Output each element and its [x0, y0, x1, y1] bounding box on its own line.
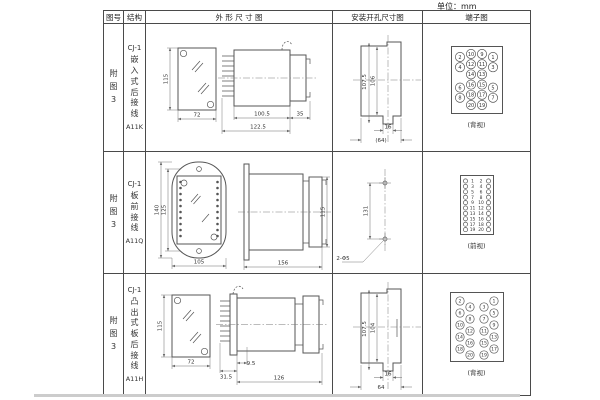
- dim-inner-height: 125: [161, 204, 167, 215]
- dim-overall-height: 107.5: [362, 73, 368, 89]
- terminal-number: 13: [478, 72, 484, 78]
- terminal-circle: [463, 222, 467, 226]
- terminal-circle: [463, 184, 467, 188]
- terminal-circle: [486, 190, 490, 194]
- terminal-number: 5: [471, 189, 474, 195]
- terminal-number: 11: [478, 62, 484, 68]
- terminal-number: 14: [478, 211, 484, 217]
- terminal-number: 6: [458, 85, 461, 91]
- terminal-number: 20: [467, 353, 473, 359]
- cell-terminal-row1: 2109141211314136161558181772019 (背视): [423, 24, 531, 152]
- terminal-number: 20: [478, 227, 484, 233]
- terminal-number: 17: [469, 222, 475, 228]
- terminal-number: 6: [479, 189, 482, 195]
- dim-outer-height: 140: [154, 204, 160, 215]
- dim-front-width: 105: [193, 259, 204, 265]
- model-name: CJ-1: [128, 286, 142, 294]
- mounting-holes: [379, 169, 391, 253]
- terminal-number: 4: [479, 184, 482, 190]
- install-drawing-a11q: 131 2-Φ5: [333, 157, 423, 269]
- side-view: [238, 164, 331, 260]
- install-drawing-a11h: 107.5 104 16 64: [333, 277, 423, 393]
- terminal-circle: [463, 228, 467, 232]
- terminal-circle: [486, 184, 490, 188]
- dim-front-height: 115: [157, 320, 163, 331]
- header-install: 安装开孔尺寸图: [333, 11, 423, 24]
- dim-overall-height: 107.5: [362, 320, 368, 336]
- terminal-circle: [463, 217, 467, 221]
- dim-slot-width: 16: [384, 124, 391, 130]
- terminal-circle: [486, 206, 490, 210]
- dim-body-length: 126: [273, 375, 284, 381]
- mounting-type: 凸出式板后接线: [129, 297, 141, 373]
- terminal-number: 5: [491, 85, 494, 91]
- side-dimensions: 9.5 31.5 126: [219, 343, 321, 385]
- terminal-number: 19: [481, 353, 487, 359]
- terminal-number: 17: [491, 347, 497, 353]
- terminal-number: 7: [471, 195, 474, 201]
- dim-side-length: 156: [277, 260, 288, 266]
- terminal-number: 12: [467, 329, 473, 335]
- terminal-number: 16: [478, 216, 484, 222]
- dim-hole-distance: 131: [363, 205, 369, 216]
- terminal-number: 15: [481, 341, 487, 347]
- terminal-number: 18: [467, 93, 473, 99]
- terminal-number: 11: [469, 206, 475, 212]
- terminal-number: 18: [457, 347, 463, 353]
- cell-terminal-row3: 2610141848121620371115191591317 (背视): [423, 274, 531, 396]
- terminal-number: 8: [479, 195, 482, 201]
- front-view: [172, 295, 210, 357]
- install-drawing-a11k: 107.5 106 16 (64): [333, 30, 423, 146]
- terminal-block: 2610141848121620371115191591317: [450, 292, 504, 362]
- outline-drawing-a11h: 115 72 9.5 31: [146, 281, 333, 389]
- terminal-diagram: 2610141848121620371115191591317: [450, 292, 504, 362]
- hole-spec-label: 2-Φ5: [336, 256, 350, 262]
- terminal-number: 14: [467, 72, 473, 78]
- model-name: CJ-1: [128, 44, 142, 52]
- header-terminal: 端子图: [423, 11, 531, 24]
- terminal-number: 9: [492, 323, 495, 329]
- header-struct: 结构: [124, 11, 146, 24]
- terminal-number: 17: [478, 93, 484, 99]
- terminal-circle: [463, 195, 467, 199]
- dim-total-length: 122.5: [250, 124, 266, 130]
- terminal-number: 11: [481, 329, 487, 335]
- terminal-number: 10: [457, 323, 463, 329]
- terminal-number: 13: [491, 335, 497, 341]
- dim-plug-length: 35: [296, 111, 303, 117]
- front-view: [178, 48, 216, 110]
- terminal-number: 9: [471, 200, 474, 206]
- terminal-number: 8: [458, 96, 461, 102]
- terminal-number: 1: [491, 55, 494, 61]
- side-view: [218, 41, 316, 105]
- terminal-number: 4: [468, 305, 471, 311]
- header-fig: 图号: [104, 11, 124, 24]
- dim-side-height: 115: [320, 206, 326, 217]
- cell-install-row3: 107.5 104 16 64: [333, 274, 423, 396]
- cell-struct-row3: CJ-1 凸出式板后接线 A11H: [124, 274, 146, 396]
- terminal-circle: [486, 211, 490, 215]
- terminal-circle: [463, 211, 467, 215]
- cell-terminal-row2: 1234567891011121314151617181920 (前视): [423, 152, 531, 274]
- terminal-number: 1: [471, 179, 474, 185]
- terminal-number: 13: [469, 211, 475, 217]
- cell-fig-row2: 附图3: [104, 152, 124, 274]
- cell-outline-row1: 115 72 100.5 35: [146, 24, 333, 152]
- mounting-type: 板前接线: [129, 191, 141, 234]
- terminal-diagram: 2109141211314136161558181772019: [451, 46, 503, 114]
- dim-inner-height: 106: [370, 75, 376, 86]
- terminal-number: 19: [469, 227, 475, 233]
- terminal-number: 14: [457, 335, 463, 341]
- fig-number: 附图3: [109, 68, 119, 106]
- cell-outline-row3: 115 72 9.5 31: [146, 274, 333, 396]
- dim-offset: 9.5: [246, 361, 255, 367]
- terminal-circle: [463, 201, 467, 205]
- side-view: [216, 286, 327, 355]
- dim-hole-width: 64: [377, 385, 384, 391]
- model-code: A11Q: [126, 237, 144, 245]
- cell-outline-row2: 140 125 105 156: [146, 152, 333, 274]
- terminal-number: 1: [492, 299, 495, 305]
- model-name: CJ-1: [128, 180, 142, 188]
- terminal-circle: [486, 217, 490, 221]
- side-dimensions: 100.5 35 122.5: [222, 98, 310, 134]
- dim-body-length: 100.5: [254, 111, 270, 117]
- manual-page: 单位：mm 图号 结构 外 形 尺 寸 图 安装开孔尺寸图 端子图 附图3 CJ…: [0, 0, 600, 400]
- terminal-circle: [463, 190, 467, 194]
- header-outline: 外 形 尺 寸 图: [146, 11, 333, 24]
- terminal-number: 15: [469, 216, 475, 222]
- terminal-circle: [463, 179, 467, 183]
- terminal-circle: [486, 228, 490, 232]
- front-dimensions: 115 72: [163, 48, 216, 122]
- cell-fig-row3: 附图3: [104, 274, 124, 396]
- terminal-view-label: (前视): [467, 240, 485, 250]
- dim-pin-length: 31.5: [219, 374, 232, 380]
- terminal-number: 12: [478, 206, 484, 212]
- terminal-view-label: (背视): [467, 119, 485, 129]
- dim-hole-width: (64): [375, 138, 386, 144]
- terminal-circle: [486, 179, 490, 183]
- terminal-diagram: 1234567891011121314151617181920: [460, 175, 494, 235]
- terminal-number: 12: [467, 62, 473, 68]
- terminal-circle: [463, 206, 467, 210]
- terminal-number: 4: [458, 65, 461, 71]
- terminal-number: 2: [479, 179, 482, 185]
- dim-slot-width: 16: [384, 371, 391, 377]
- model-code: A11K: [126, 123, 143, 131]
- terminal-number: 6: [458, 311, 461, 317]
- front-view: [172, 162, 226, 258]
- terminal-number: 5: [492, 311, 495, 317]
- terminal-number: 7: [482, 317, 485, 323]
- cell-struct-row2: CJ-1 板前接线 A11Q: [124, 152, 146, 274]
- terminal-number: 3: [471, 184, 474, 190]
- terminal-circle: [486, 195, 490, 199]
- cell-install-row2: 131 2-Φ5: [333, 152, 423, 274]
- terminal-number: 2: [458, 299, 461, 305]
- dim-inner-height: 104: [370, 322, 376, 333]
- terminal-number: 2: [458, 55, 461, 61]
- terminal-block: 2109141211314136161558181772019: [451, 46, 503, 114]
- terminal-circle: [486, 201, 490, 205]
- terminal-number: 10: [467, 52, 473, 58]
- cell-fig-row1: 附图3: [104, 24, 124, 152]
- spec-table: 图号 结构 外 形 尺 寸 图 安装开孔尺寸图 端子图 附图3 CJ-1 嵌入式…: [103, 10, 531, 396]
- front-dimensions: 115 72: [157, 295, 210, 369]
- cell-install-row1: 107.5 106 16 (64): [333, 24, 423, 152]
- side-dimensions: 156 115: [244, 177, 330, 270]
- terminal-number: 18: [478, 222, 484, 228]
- terminal-number: 8: [468, 317, 471, 323]
- terminal-number: 16: [467, 341, 473, 347]
- terminal-view-label: (背视): [467, 367, 485, 377]
- terminal-number: 7: [491, 96, 494, 102]
- dim-front-width: 72: [187, 359, 194, 365]
- terminal-number: 3: [482, 305, 485, 311]
- outline-drawing-a11k: 115 72 100.5 35: [146, 36, 333, 140]
- model-code: A11H: [126, 375, 144, 383]
- page-edge: [34, 394, 520, 397]
- fig-number: 附图3: [109, 193, 119, 231]
- terminal-circle: [486, 222, 490, 226]
- outline-drawing-a11q: 140 125 105 156: [146, 154, 333, 272]
- terminal-number: 15: [478, 82, 484, 88]
- terminal-number: 16: [467, 82, 473, 88]
- dim-front-width: 72: [193, 112, 200, 118]
- mounting-type: 嵌入式后接线: [129, 55, 141, 120]
- dim-front-height: 115: [163, 73, 169, 84]
- terminal-block: 1234567891011121314151617181920: [460, 175, 494, 235]
- fig-number: 附图3: [109, 315, 119, 353]
- terminal-number: 3: [491, 65, 494, 71]
- terminal-number: 9: [480, 52, 483, 58]
- cell-struct-row1: CJ-1 嵌入式后接线 A11K: [124, 24, 146, 152]
- terminal-number: 20: [467, 103, 473, 109]
- terminal-number: 10: [478, 200, 484, 206]
- terminal-number: 19: [478, 103, 484, 109]
